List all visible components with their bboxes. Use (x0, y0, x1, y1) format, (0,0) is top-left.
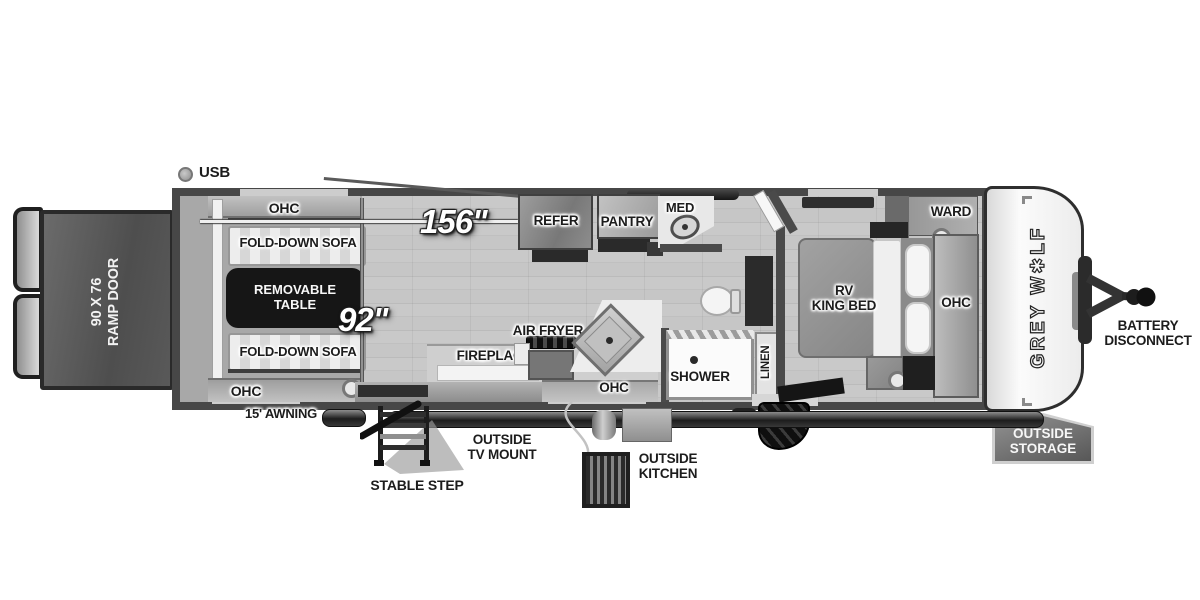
ward-label: WARD (916, 205, 986, 220)
paw-print-icon: ✱ (1028, 255, 1049, 274)
bath-bedroom-wall (776, 226, 785, 402)
sofa-rail-bottom (228, 369, 364, 373)
floorplan-diagram: 90 X 76 RAMP DOOR FOLD-DOWN SOFA REMOVAB… (0, 0, 1200, 600)
awning-label: 15' AWNING (236, 407, 326, 421)
bedroom-ohc-cabinet (933, 234, 979, 398)
outside-storage-label: OUTSIDE STORAGE (995, 426, 1091, 456)
garage-ohc-top-label: OHC (208, 201, 360, 216)
toilet-tank (730, 289, 741, 314)
length-dimension: 156" (420, 205, 487, 238)
garage-partition-line (360, 198, 364, 398)
a-frame (1088, 278, 1122, 314)
shower-label: SHOWER (656, 370, 744, 385)
bath-tv-cabinet (745, 256, 773, 326)
stove-base (528, 350, 574, 380)
shower-drain (690, 356, 698, 364)
step-handrail (362, 404, 418, 436)
shower-door-track (666, 330, 754, 339)
stable-step-label: STABLE STEP (365, 478, 469, 493)
refrigerator-base (532, 250, 588, 262)
med-wall (660, 244, 722, 252)
brand-suffix: LF (1028, 226, 1049, 255)
outside-kitchen-label: OUTSIDE KITCHEN (622, 452, 714, 481)
awning-tube (388, 411, 1044, 428)
bedroom-ohc-label: OHC (933, 296, 979, 311)
fold-down-sofa-top-label: FOLD-DOWN SOFA (228, 236, 368, 250)
tv-mount-label: OUTSIDE TV MOUNT (446, 433, 558, 462)
jack-bar (1078, 256, 1092, 344)
usb-label: USB (199, 165, 259, 181)
med-label: MED (648, 201, 712, 215)
fireplace-mantel (437, 365, 539, 381)
toilet-bowl (700, 286, 734, 316)
brand-prefix: GREY W (1028, 274, 1049, 369)
kitchen-ohc-label: OHC (584, 381, 644, 396)
ward-base (870, 222, 908, 238)
brand-logo: GREY W✱LF (1027, 207, 1053, 387)
med-sink-drain (682, 224, 688, 230)
pantry-base (598, 239, 650, 252)
linen-label: LINEN (760, 322, 772, 402)
pillow-bottom (905, 302, 931, 354)
ramp-door-flap-bottom (13, 294, 43, 379)
fireplace-hearth (358, 385, 428, 397)
shower-pan (666, 330, 754, 400)
bedroom-dark-cabinet (903, 356, 935, 390)
bed-headwall-shelf (802, 197, 874, 208)
width-dimension: 92" (338, 303, 387, 336)
battery-disconnect-label: BATTERY DISCONNECT (1100, 319, 1196, 348)
cap-hinge-top (1022, 196, 1032, 204)
kitchen-sink-drain (606, 337, 613, 344)
usb-icon (178, 167, 193, 182)
cap-hinge-bottom (1022, 398, 1032, 406)
fold-down-sofa-bottom-label: FOLD-DOWN SOFA (228, 345, 368, 359)
pillow-top (905, 244, 931, 298)
sofa-wall-track (212, 199, 223, 397)
king-bed-label: RV KING BED (788, 284, 900, 313)
ramp-door-flap-top (13, 207, 43, 292)
outside-kitchen-tank (592, 410, 616, 440)
window-garage-top (240, 189, 348, 196)
coupler-ball (1137, 288, 1156, 307)
ramp-door-label: 90 X 76 RAMP DOOR (89, 222, 123, 382)
refer-label: REFER (518, 214, 594, 229)
pantry-label: PANTRY (594, 215, 660, 230)
garage-ohc-bottom-label: OHC (196, 384, 296, 399)
window-bedroom-top (808, 189, 878, 196)
outside-kitchen-box (622, 408, 672, 442)
